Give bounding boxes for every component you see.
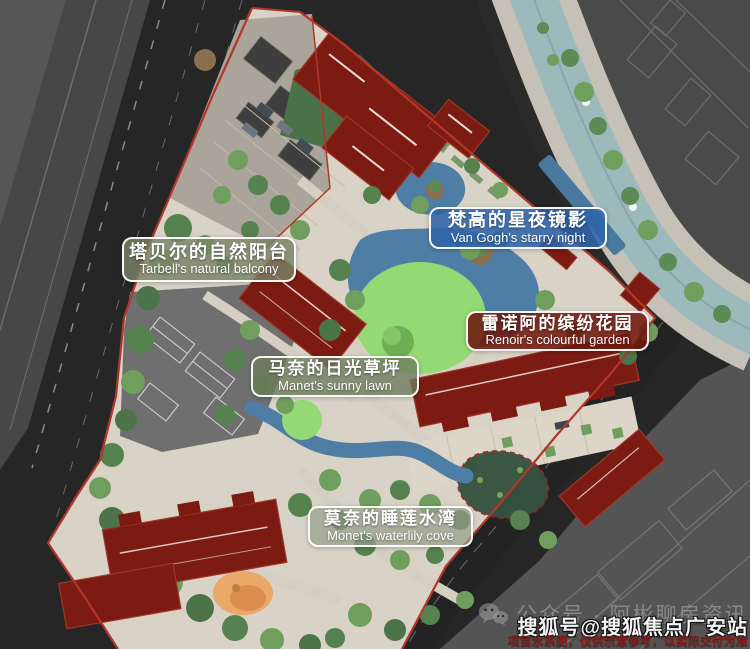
area-label-monet-zh: 莫奈的睡莲水湾: [324, 509, 457, 529]
area-label-manet: 马奈的日光草坪 Manet's sunny lawn: [251, 356, 419, 397]
playground: [213, 571, 273, 615]
wechat-icon: [478, 601, 508, 627]
area-label-monet-en: Monet's waterlily cove: [327, 529, 454, 544]
site-plan-screenshot: 塔贝尔的自然阳台 Tarbell's natural balcony 梵高的星夜…: [0, 0, 750, 649]
area-label-monet: 莫奈的睡莲水湾 Monet's waterlily cove: [308, 506, 473, 547]
area-label-renoir: 雷诺阿的缤纷花园 Renoir's colourful garden: [466, 311, 649, 351]
disclaimer-text: 项目水系图，仅供示意参考，以实际交付为准: [508, 633, 748, 649]
area-label-manet-zh: 马奈的日光草坪: [269, 359, 402, 379]
area-label-tarbell: 塔贝尔的自然阳台 Tarbell's natural balcony: [122, 237, 296, 282]
area-label-renoir-en: Renoir's colourful garden: [485, 333, 629, 348]
area-label-vangogh: 梵高的星夜镜影 Van Gogh's starry night: [429, 207, 607, 249]
area-label-vangogh-zh: 梵高的星夜镜影: [448, 210, 588, 231]
area-label-tarbell-zh: 塔贝尔的自然阳台: [129, 242, 289, 263]
area-label-renoir-zh: 雷诺阿的缤纷花园: [482, 314, 634, 334]
area-label-vangogh-en: Van Gogh's starry night: [451, 231, 585, 246]
area-label-tarbell-en: Tarbell's natural balcony: [139, 262, 278, 277]
area-label-manet-en: Manet's sunny lawn: [278, 379, 392, 394]
